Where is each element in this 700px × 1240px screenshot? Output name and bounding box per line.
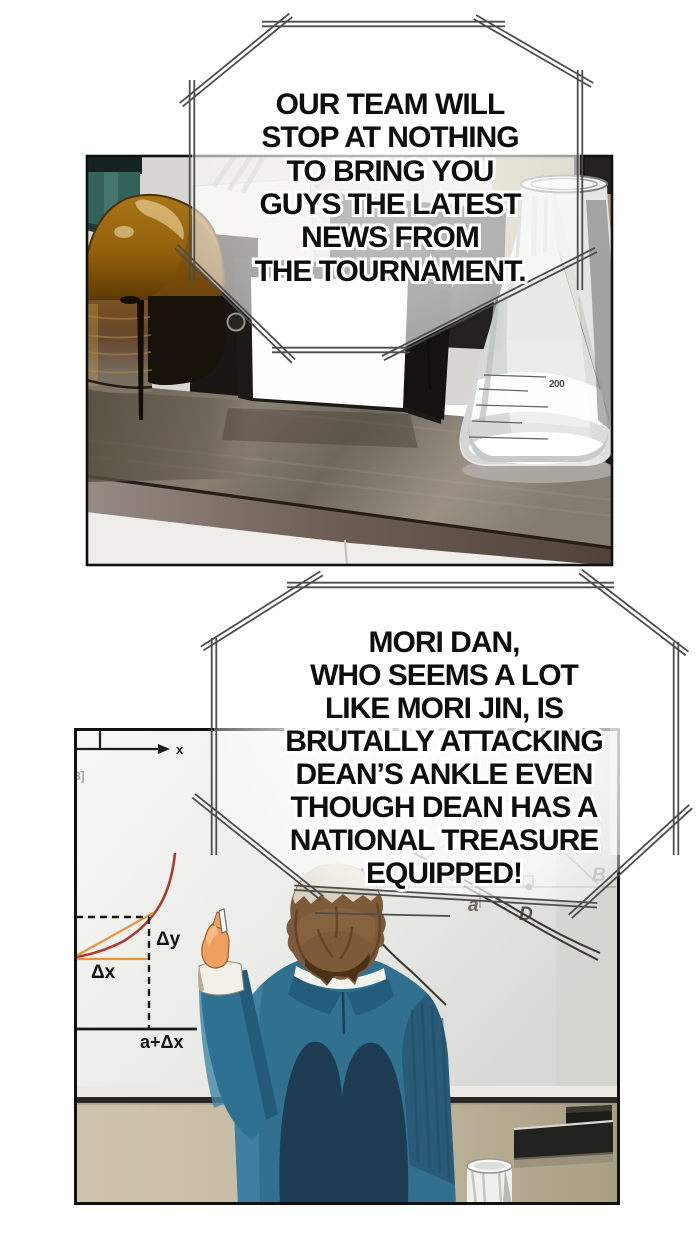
- svg-text:Δy: Δy: [156, 929, 181, 950]
- svg-text:OUR TEAM WILL: OUR TEAM WILL: [276, 88, 505, 121]
- svg-text:DEAN’S ANKLE EVEN: DEAN’S ANKLE EVEN: [296, 758, 593, 791]
- svg-text:Δx: Δx: [91, 962, 116, 983]
- svg-text:MORI DAN,: MORI DAN,: [369, 626, 520, 659]
- svg-text:200: 200: [549, 379, 565, 390]
- svg-text:THOUGH DEAN HAS A: THOUGH DEAN HAS A: [291, 791, 598, 824]
- svg-text:x: x: [176, 742, 184, 757]
- svg-text:THE TOURNAMENT.: THE TOURNAMENT.: [254, 255, 525, 288]
- svg-text:NATIONAL TREASURE: NATIONAL TREASURE: [290, 824, 599, 857]
- svg-text:a+Δx: a+Δx: [140, 1032, 183, 1052]
- svg-text:BRUTALLY ATTACKING: BRUTALLY ATTACKING: [285, 725, 603, 758]
- svg-text:TO BRING YOU: TO BRING YOU: [287, 155, 494, 188]
- svg-text:WHO SEEMS A LOT: WHO SEEMS A LOT: [310, 659, 578, 692]
- svg-text:STOP AT NOTHING: STOP AT NOTHING: [261, 121, 518, 154]
- svg-text:EQUIPPED!: EQUIPPED!: [366, 857, 522, 890]
- svg-text:NEWS FROM: NEWS FROM: [301, 221, 479, 254]
- svg-text:a: a: [468, 895, 479, 916]
- svg-text:GUYS THE LATEST: GUYS THE LATEST: [259, 188, 521, 221]
- svg-text:LIKE MORI JIN, IS: LIKE MORI JIN, IS: [325, 692, 563, 725]
